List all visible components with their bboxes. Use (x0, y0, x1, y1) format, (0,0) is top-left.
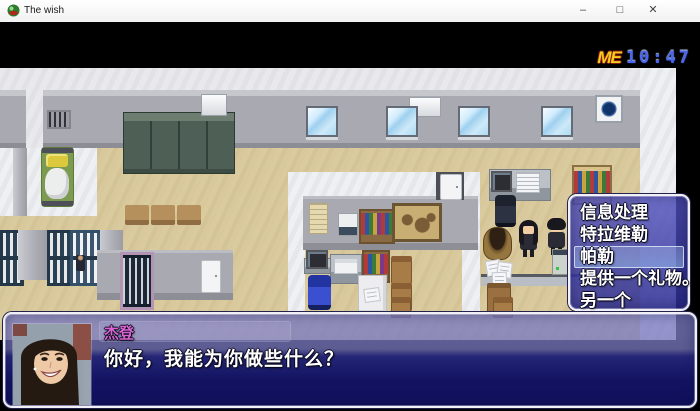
white-door[interactable] (201, 260, 221, 293)
paper-on-table (363, 287, 381, 303)
wall-phone (338, 213, 358, 236)
bench (125, 205, 149, 225)
prisoner-figure[interactable] (76, 255, 85, 271)
npc-legs (523, 249, 534, 257)
computer-monitor (306, 250, 328, 269)
maximize-button[interactable]: □ (607, 0, 633, 22)
bed-blanket (45, 168, 69, 199)
bed-footboard (42, 201, 73, 206)
corridor-floor (0, 68, 676, 92)
bed (41, 147, 74, 207)
window-2 (386, 106, 418, 137)
choice-item[interactable]: 帕勒 (574, 246, 684, 268)
game-window: The wish – □ ✕ (0, 0, 700, 411)
bed-headboard (42, 148, 73, 153)
npc-hair (547, 218, 566, 230)
cell-pillar (18, 230, 47, 280)
speaker-name: 杰登 (104, 322, 134, 343)
bench (177, 205, 201, 225)
choice-item[interactable]: 提供一个礼物。 (574, 268, 684, 290)
chair-brown (391, 256, 412, 284)
bed-pillow (46, 154, 68, 167)
choice-item[interactable]: 另一个 (574, 290, 684, 312)
wall-bookshelf (359, 209, 395, 244)
office-chair-black (495, 195, 516, 227)
choice-item[interactable]: 特拉维勒 (574, 224, 684, 246)
office-chair-blue (308, 275, 331, 310)
office-door[interactable] (440, 174, 462, 200)
wall-opening (26, 90, 43, 148)
window-3 (458, 106, 490, 137)
barrel (483, 227, 512, 260)
wall-pillar (13, 148, 27, 216)
app-icon (7, 4, 20, 17)
vent-grille (47, 110, 71, 129)
wall-poster (309, 203, 328, 234)
lockers (123, 112, 235, 174)
npc-body (548, 232, 565, 248)
choice-item[interactable]: 信息处理 (574, 202, 684, 224)
wall-fan-icon (595, 95, 623, 123)
clock-time: 10:47 (626, 48, 692, 68)
window-4 (541, 106, 573, 137)
speaker-portrait (12, 323, 92, 406)
right-monitor (491, 171, 512, 192)
npc-face (523, 226, 534, 234)
title-bar: The wish – □ ✕ (0, 0, 700, 23)
minimize-button[interactable]: – (570, 0, 596, 22)
wall-map (392, 203, 442, 242)
me-logo: ME (597, 48, 621, 68)
choice-menu: 信息处理 特拉维勒 帕勒 提供一个礼物。 另一个 (568, 194, 690, 311)
barred-gate[interactable] (120, 252, 154, 310)
dialogue-window[interactable]: 杰登 你好，我能为你做些什么？ (3, 312, 697, 408)
window-title: The wish (24, 0, 64, 22)
bench (151, 205, 175, 225)
hud-timer: ME 10:47 (597, 48, 692, 68)
close-button[interactable]: ✕ (640, 0, 666, 22)
dialogue-text: 你好，我能为你做些什么？ (104, 344, 344, 371)
npc-female[interactable] (517, 220, 540, 258)
notice-board (516, 172, 540, 193)
printer (334, 258, 358, 274)
window-1 (306, 106, 338, 137)
ac-unit-small (201, 94, 227, 116)
